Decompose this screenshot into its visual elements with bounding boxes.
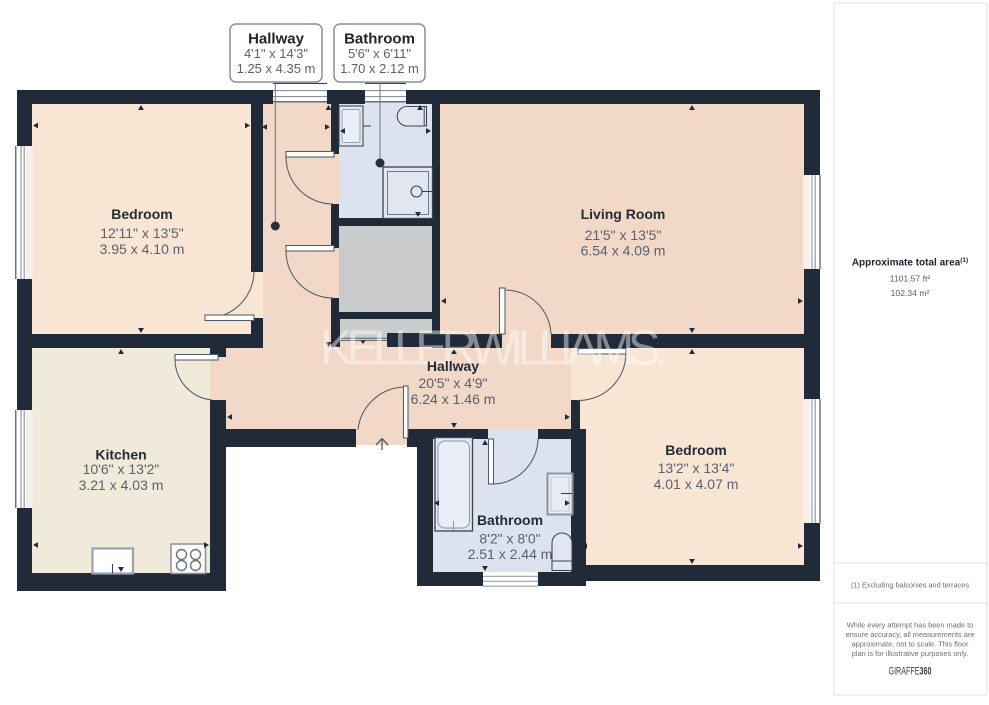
svg-text:12'11" x 13'5": 12'11" x 13'5"	[100, 225, 184, 241]
svg-text:While every attempt has been m: While every attempt has been made to	[847, 621, 974, 630]
svg-text:3.21 x 4.03 m: 3.21 x 4.03 m	[79, 477, 164, 493]
svg-text:6.24 x 1.46 m: 6.24 x 1.46 m	[411, 391, 496, 407]
svg-text:102.34 m²: 102.34 m²	[891, 288, 930, 298]
svg-text:Bathroom: Bathroom	[344, 31, 415, 48]
svg-text:Bedroom: Bedroom	[111, 206, 172, 222]
svg-text:3.95 x 4.10 m: 3.95 x 4.10 m	[100, 241, 185, 257]
svg-text:Hallway: Hallway	[427, 358, 479, 374]
svg-text:Approximate total area(1): Approximate total area(1)	[852, 257, 968, 269]
svg-text:GIRAFFE360: GIRAFFE360	[889, 666, 932, 678]
svg-text:1.70 x 2.12 m: 1.70 x 2.12 m	[340, 61, 419, 76]
svg-text:5'6" x 6'11": 5'6" x 6'11"	[348, 46, 411, 61]
svg-text:21'5" x 13'5": 21'5" x 13'5"	[585, 227, 662, 243]
svg-text:Hallway: Hallway	[248, 31, 305, 48]
svg-text:20'5" x 4'9": 20'5" x 4'9"	[419, 375, 488, 391]
svg-text:8'2" x 8'0": 8'2" x 8'0"	[479, 531, 540, 547]
svg-text:13'2" x 13'4": 13'2" x 13'4"	[658, 460, 735, 476]
svg-text:4.01 x 4.07 m: 4.01 x 4.07 m	[654, 476, 739, 492]
svg-text:KELLERWILLIAMS.: KELLERWILLIAMS.	[320, 322, 664, 376]
svg-text:approximate, not to scale. Thi: approximate, not to scale. This floor	[852, 640, 969, 649]
svg-text:Bathroom: Bathroom	[477, 512, 543, 528]
svg-text:Bedroom: Bedroom	[665, 442, 726, 458]
svg-text:ensure accuracy, all measureme: ensure accuracy, all measurements are	[846, 630, 975, 639]
svg-text:(1) Excluding balconies and te: (1) Excluding balconies and terraces	[851, 581, 969, 590]
svg-text:1.25 x 4.35 m: 1.25 x 4.35 m	[237, 61, 316, 76]
svg-text:6.54 x 4.09 m: 6.54 x 4.09 m	[581, 243, 666, 259]
svg-text:Living Room: Living Room	[581, 206, 666, 222]
svg-text:4'1" x 14'3": 4'1" x 14'3"	[244, 46, 308, 61]
svg-text:10'6" x 13'2": 10'6" x 13'2"	[83, 461, 160, 477]
svg-text:1101.57 ft²: 1101.57 ft²	[890, 274, 931, 284]
svg-text:2.51 x 2.44 m: 2.51 x 2.44 m	[468, 546, 553, 562]
svg-text:plan is for illustrative purpo: plan is for illustrative purposes only.	[852, 649, 969, 658]
